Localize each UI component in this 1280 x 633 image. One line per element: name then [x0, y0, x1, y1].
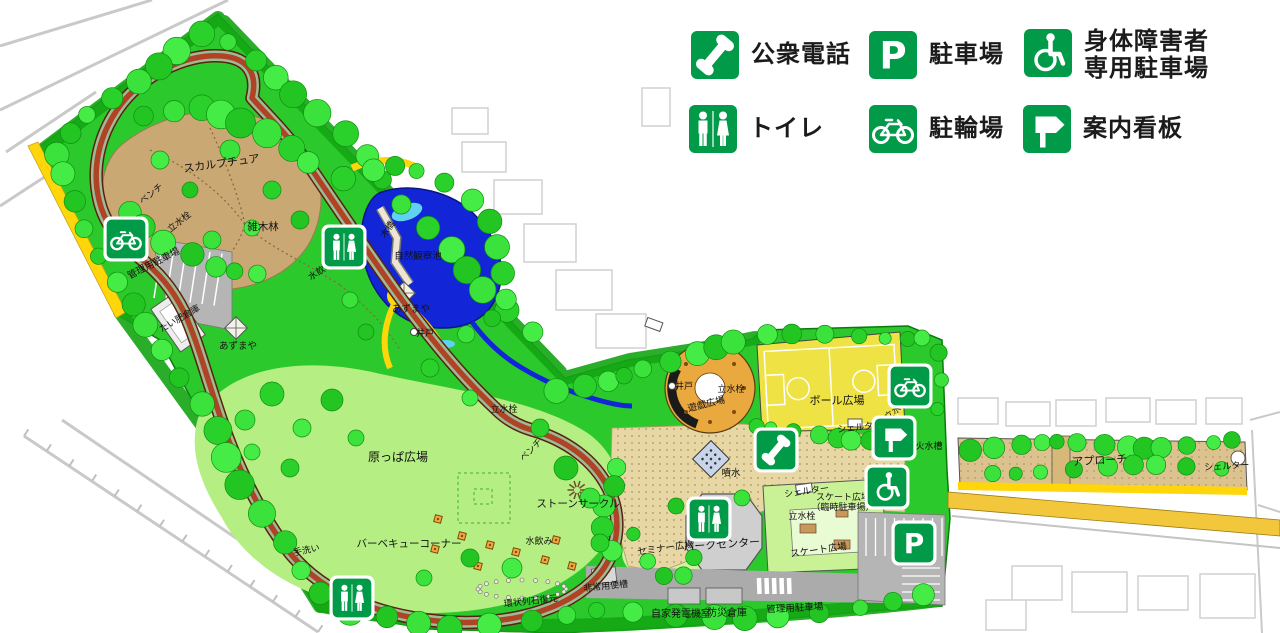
map-label: 井戸 [675, 380, 693, 392]
map-label: ストーンサークル [536, 498, 619, 510]
map-label: 自然観察池 [394, 250, 442, 262]
map-label: 井戸 [416, 327, 434, 339]
toilet-icon [322, 225, 367, 270]
map-label: 原っぱ広場 [368, 450, 428, 464]
map-label: 立水栓 [788, 510, 815, 522]
map-label: あずまや [392, 304, 430, 315]
map-label: 立水栓 [717, 383, 744, 395]
park-map: スカルプチュアベンチ立水栓雑木林管理用駐車場たい肥倉庫水飲み木橋自然観察池あずま… [0, 0, 1280, 633]
toilet-icon [687, 497, 732, 542]
disaster-warehouse [706, 588, 742, 604]
toilet-icon [330, 576, 375, 621]
map-label: 防災倉庫 [707, 606, 747, 619]
map-label: 雑木林 [247, 220, 279, 233]
bicycle-icon [104, 217, 149, 262]
map-label: ボール広場 [810, 394, 865, 407]
map-label: 火水槽 [915, 440, 942, 452]
parking-icon: P [892, 521, 937, 566]
signboard-icon [872, 416, 917, 461]
map-label: バーベキューコーナー [357, 538, 462, 550]
map-label: 立水栓 [490, 403, 517, 415]
map-label: あずまや [219, 341, 257, 352]
park-map-page: スカルプチュアベンチ立水栓雑木林管理用駐車場たい肥倉庫水飲み木橋自然観察池あずま… [0, 0, 1280, 633]
generator-room [668, 588, 700, 604]
map-label: 水飲み [525, 535, 552, 547]
map-label: 自家発電機室 [651, 607, 711, 620]
map-label: 噴水 [721, 467, 741, 479]
svg-text:P: P [904, 527, 925, 560]
bicycle-icon [888, 364, 933, 409]
wheelchair-icon [865, 465, 910, 510]
phone-icon [754, 428, 799, 473]
